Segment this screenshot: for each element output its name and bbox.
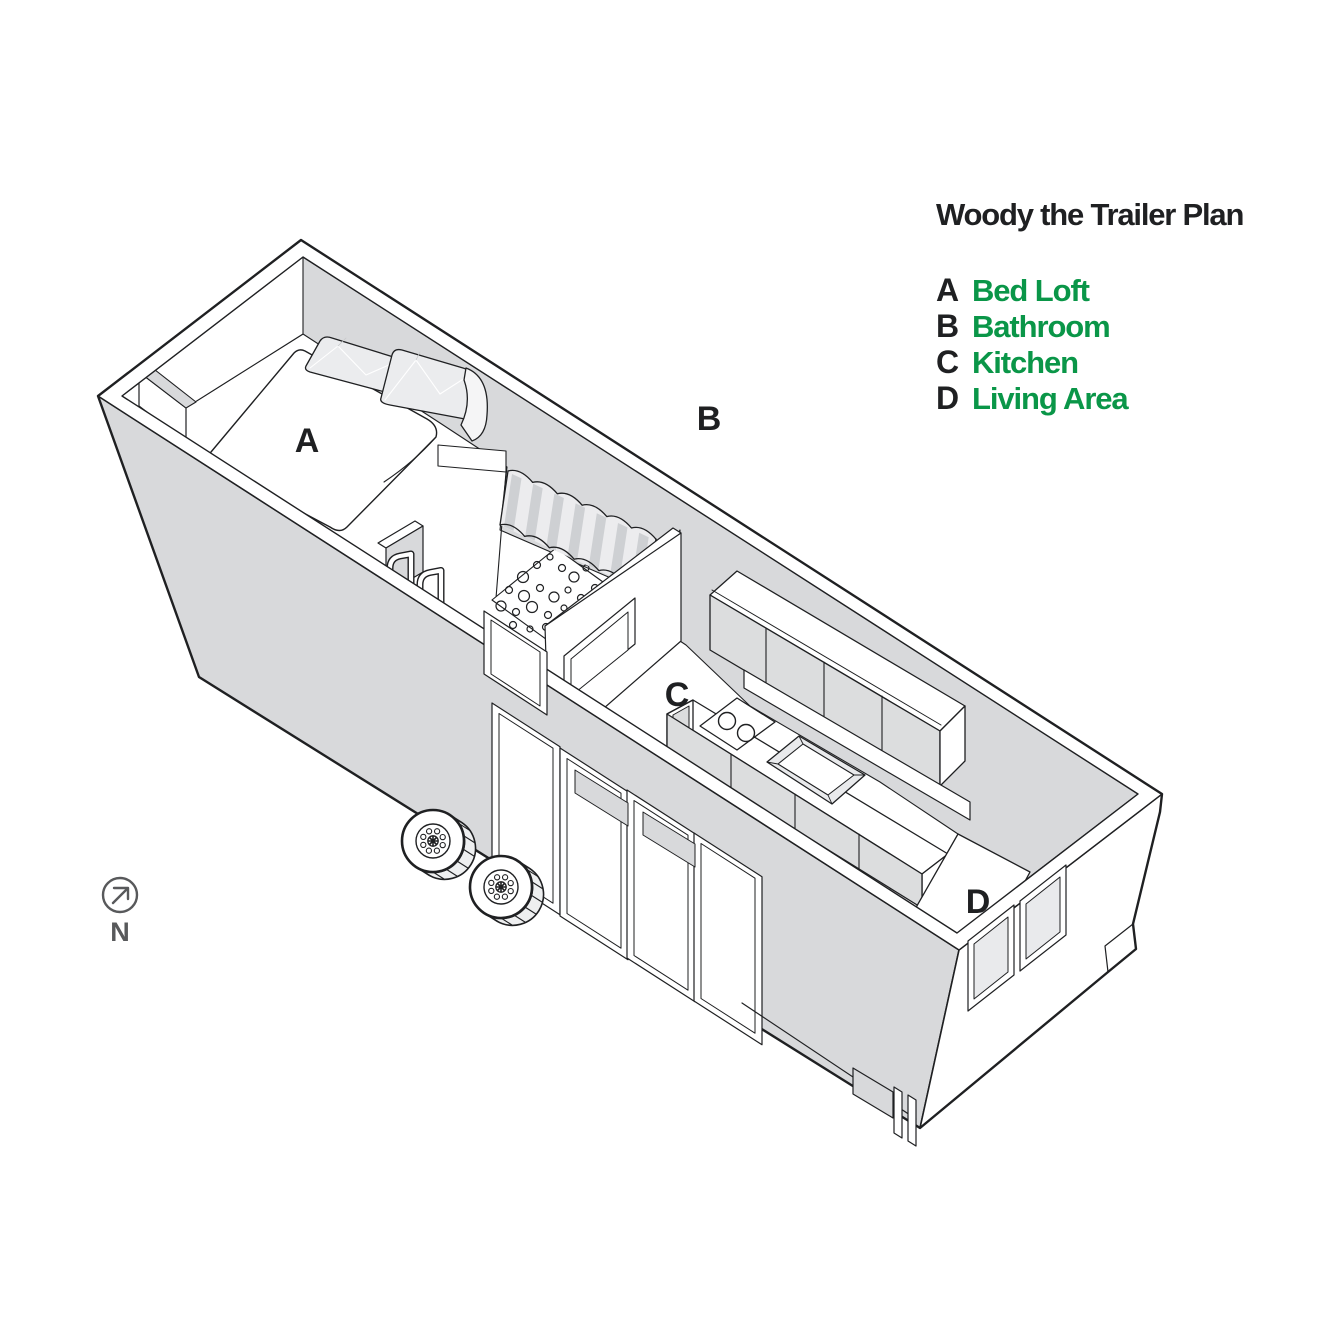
svg-text:D: D (966, 883, 991, 921)
svg-text:A: A (295, 422, 320, 460)
svg-text:B: B (697, 400, 722, 438)
svg-text:N: N (110, 917, 130, 947)
svg-text:C: C (665, 676, 690, 714)
